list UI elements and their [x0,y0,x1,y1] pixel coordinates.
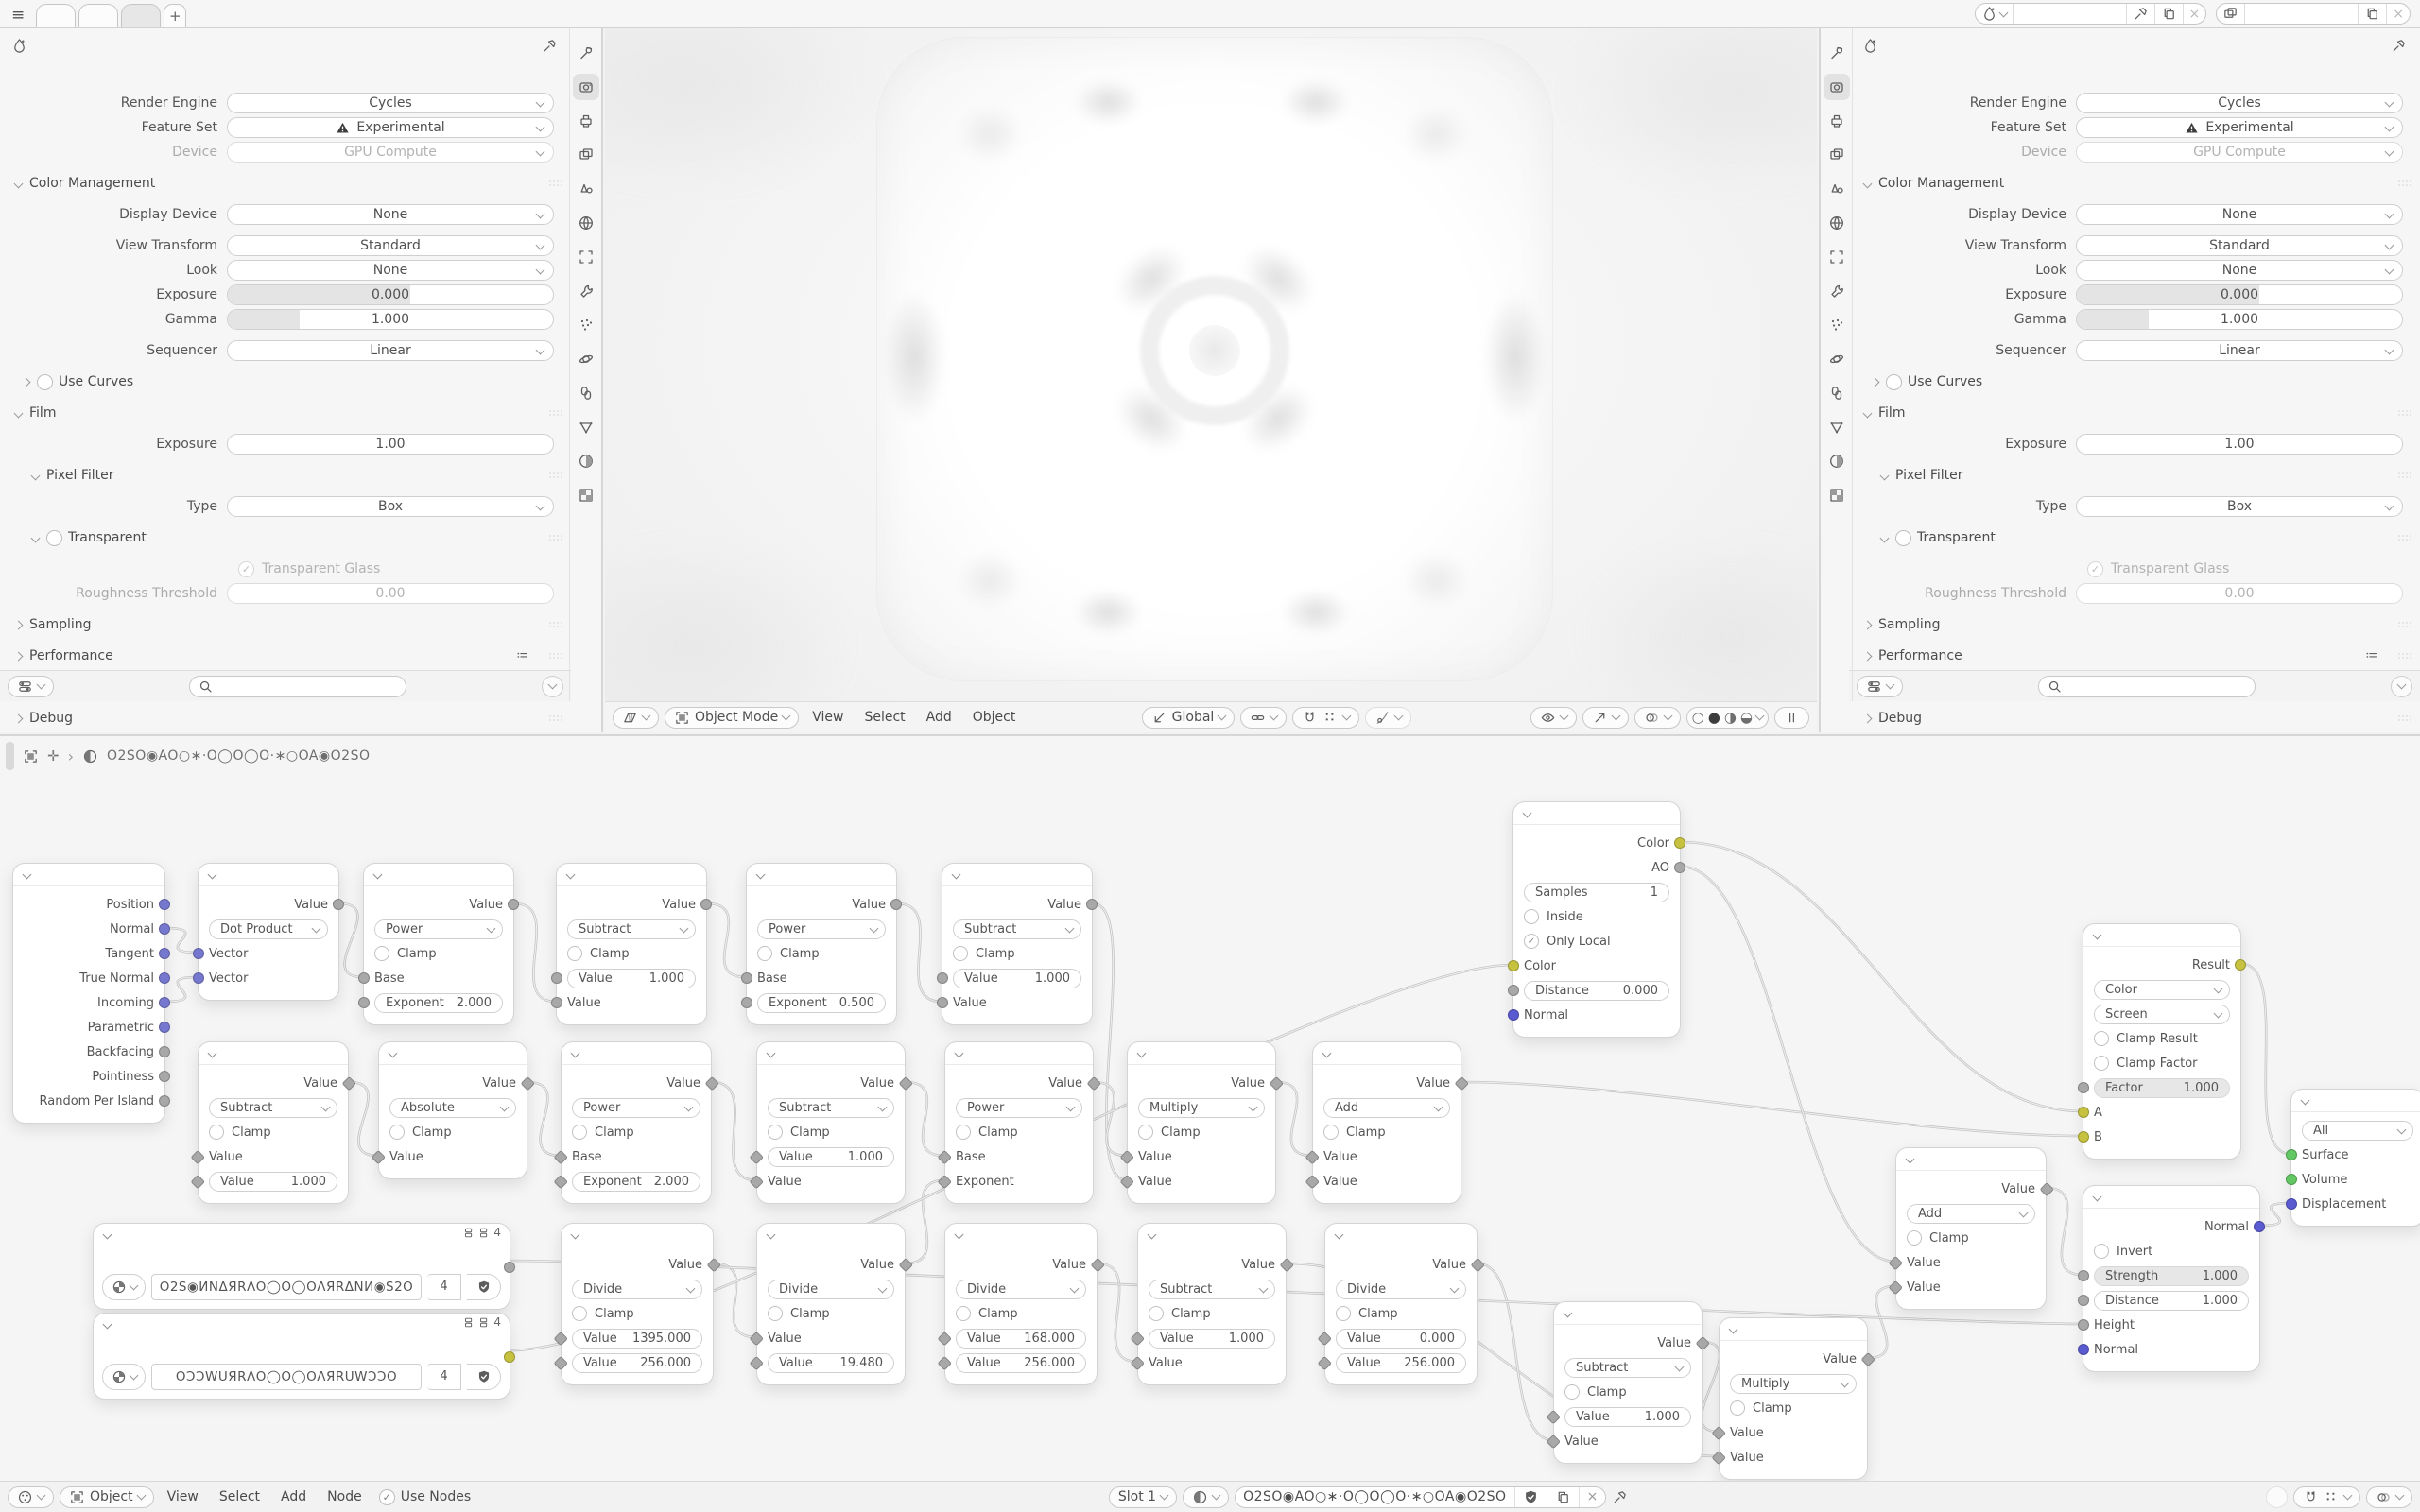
menu-node[interactable]: Node [320,1489,370,1504]
output-socket[interactable] [706,1258,720,1272]
node-row: Value1.000 [199,1169,348,1194]
node-header[interactable] [1896,1148,2046,1171]
output-socket[interactable] [159,923,170,935]
node-bump[interactable]: NormalInvertStrength1.000Distance1.000He… [2083,1185,2260,1372]
node-mathD[interactable]: ValueSubtractClampValue1.000Value [556,863,707,1025]
node-header[interactable] [562,1224,713,1246]
checkbox-clamp[interactable] [572,1125,587,1140]
node-vecmath[interactable]: ValueDot ProductVectorVector [198,863,339,1001]
dropdown-value: Dot Product [220,922,293,936]
input-label: Value [209,1150,243,1164]
node-mathU[interactable]: ValueMultiplyClampValueValue [1719,1317,1868,1480]
input-socket[interactable] [938,1150,952,1164]
input-socket[interactable] [551,997,562,1008]
collapse-chevron-icon[interactable] [566,870,576,880]
input-socket[interactable] [2286,1149,2297,1160]
node-dropdown-divide[interactable]: Divide [1336,1280,1466,1299]
value-field-value[interactable]: Value256.000 [956,1353,1086,1373]
checkbox-clamp[interactable] [956,1306,971,1321]
collapse-chevron-icon[interactable] [952,870,961,880]
node-mathF[interactable]: ValueSubtractClampValue1.000Value [942,863,1093,1025]
collapse-chevron-icon[interactable] [1729,1325,1738,1334]
node-row: Incoming [13,990,164,1015]
node-dropdown-subtract[interactable]: Subtract [953,919,1081,939]
node-header[interactable] [1128,1042,1275,1065]
collapse-chevron-icon[interactable] [389,1049,398,1058]
node-row: Value [1720,1420,1867,1445]
checkbox-clamp[interactable] [567,946,582,961]
node-dropdown-add[interactable]: Add [1907,1204,2035,1224]
checkbox-clamp-factor[interactable] [2094,1056,2109,1071]
input-socket[interactable] [750,1356,764,1370]
collapse-chevron-icon[interactable] [955,1230,964,1240]
field-value: 168.000 [1024,1332,1075,1346]
node-dropdown-power[interactable]: Power [757,919,886,939]
fake-user-shield-button[interactable] [467,1274,501,1300]
checkbox-clamp[interactable] [956,1125,971,1140]
node-dropdown-divide[interactable]: Divide [768,1280,894,1299]
node-row: Add [1896,1201,2046,1226]
checkbox-only-local[interactable]: ✓ [1524,934,1539,949]
output-socket[interactable] [890,899,902,910]
value-field-value[interactable]: Value1.000 [567,969,696,988]
node-dropdown-absolute[interactable]: Absolute [389,1098,516,1118]
collapse-chevron-icon[interactable] [2093,1193,2102,1202]
input-socket[interactable] [1131,1356,1145,1370]
checkbox-label: Clamp [1753,1401,1792,1416]
checkbox-label: Clamp [595,1307,634,1321]
node-header[interactable]: 4 [94,1314,510,1336]
output-socket[interactable] [1086,899,1098,910]
node-header[interactable] [1720,1318,1867,1341]
input-socket[interactable] [1889,1256,1903,1270]
output-socket[interactable] [1674,862,1685,873]
output-socket[interactable] [1269,1076,1283,1091]
node-row: Value256.000 [1325,1350,1477,1375]
node-dropdown-add[interactable]: Add [1323,1098,1450,1118]
node-row: Multiply [1720,1371,1867,1396]
fake-user-shield-button[interactable] [467,1364,501,1390]
input-socket[interactable] [2078,1107,2089,1118]
node-header[interactable] [199,1042,348,1065]
node-mathO[interactable]: ValueDivideClampValue1395.000Value256.00… [561,1223,714,1385]
image-browse-button[interactable] [102,1364,146,1390]
node-img1[interactable]: 4O2S◉ИNΔЯRΛO◯O◯OΛЯRΔNИ◉S2O4 [93,1223,510,1310]
input-socket[interactable] [750,1150,764,1164]
field-value: 2.000 [457,996,492,1010]
node-dropdown-screen[interactable]: Screen [2094,1005,2230,1024]
node-header[interactable] [562,1042,711,1065]
input-socket[interactable] [1712,1451,1726,1465]
input-socket[interactable] [750,1332,764,1346]
collapse-chevron-icon[interactable] [767,1230,776,1240]
node-mathL[interactable]: ValueMultiplyClampValueValue [1127,1041,1276,1204]
checkbox-clamp[interactable] [374,946,389,961]
pin-icon[interactable] [1612,1489,1628,1505]
node-mix[interactable]: ResultColorScreenClamp ResultClamp Facto… [2083,923,2241,1160]
material-name-field[interactable]: O2SO◉AO○∗·O◯O◯O·∗○OA◉O2SO [1236,1487,1514,1507]
checkbox-clamp[interactable] [572,1306,587,1321]
input-socket[interactable] [372,1150,386,1164]
output-socket[interactable] [1674,837,1685,849]
output-socket[interactable] [1470,1258,1484,1272]
value-field-value[interactable]: Value0.000 [1336,1329,1466,1349]
node-header[interactable] [747,864,896,886]
image-name-field[interactable]: O2S◉ИNΔЯRΛO◯O◯OΛЯRΔNИ◉S2O [151,1274,422,1300]
image-browse-button[interactable] [102,1274,146,1300]
overlays-button[interactable] [2366,1486,2412,1508]
node-dropdown-subtract[interactable]: Subtract [768,1098,894,1118]
output-socket[interactable] [159,1046,170,1057]
checkbox-clamp[interactable] [1323,1125,1339,1140]
value-field-value[interactable]: Value168.000 [956,1329,1086,1349]
field-label: Value [1576,1410,1610,1424]
node-row: Base [945,1144,1093,1169]
output-label: AO [1651,861,1669,875]
node-mathH[interactable]: ValueAbsoluteClampValue [378,1041,527,1179]
node-header[interactable] [2083,924,2240,947]
node-mathW[interactable]: ValueAddClampValueValue [1895,1147,2047,1310]
value-field-samples[interactable]: Samples1 [1524,883,1669,902]
input-socket[interactable] [1508,960,1519,971]
output-socket[interactable] [159,972,170,984]
value-field-strength[interactable]: Strength1.000 [2094,1266,2249,1286]
input-socket[interactable] [2078,1131,2089,1143]
input-socket[interactable] [1131,1332,1145,1346]
menu-view[interactable]: View [160,1489,206,1504]
output-label: Value [1047,898,1081,912]
collapse-chevron-icon[interactable] [1564,1309,1573,1318]
input-socket[interactable] [554,1150,568,1164]
value-field-exponent[interactable]: Exponent0.500 [757,993,886,1013]
input-label: Color [1524,959,1556,973]
output-socket[interactable] [704,1076,718,1091]
field-label: Distance [1535,984,1589,998]
checkbox-clamp[interactable] [1730,1400,1745,1416]
collapse-chevron-icon[interactable] [2093,931,2102,940]
node-header[interactable] [945,1224,1097,1246]
use-nodes-checkbox[interactable]: ✓Use Nodes [379,1489,471,1505]
collapse-chevron-icon[interactable] [373,870,383,880]
node-body: ValueSubtractClampValue1.000Value [1554,1325,1702,1463]
node-dropdown-subtract[interactable]: Subtract [1564,1358,1691,1378]
node-dropdown-power[interactable]: Power [374,919,503,939]
node-dropdown-all[interactable]: All [2302,1121,2413,1141]
ghost-button[interactable] [2266,1486,2288,1508]
checkbox-clamp[interactable] [1564,1384,1580,1400]
image-datablock-row: OƆƆWUЯRΛO◯O◯OΛЯRUWƆƆO4 [102,1363,501,1390]
node-header[interactable] [199,864,338,886]
value-field-exponent[interactable]: Exponent2.000 [572,1172,700,1192]
output-socket[interactable] [1454,1076,1468,1091]
value-field-value[interactable]: Value1.000 [209,1172,337,1192]
checkbox-clamp[interactable] [768,1125,783,1140]
input-socket[interactable] [938,1356,952,1370]
output-socket[interactable] [700,899,712,910]
menu-add[interactable]: Add [273,1489,314,1504]
node-row: All [2291,1118,2420,1143]
node-header[interactable] [757,1224,905,1246]
output-label: Value [1048,1076,1082,1091]
node-header[interactable] [364,864,513,886]
field-value: 0.500 [839,996,874,1010]
output-socket[interactable] [159,899,170,910]
collapse-chevron-icon[interactable] [103,1230,112,1240]
collapse-chevron-icon[interactable] [1523,809,1532,818]
field-value: 1395.000 [632,1332,691,1346]
output-socket[interactable] [341,1076,355,1091]
output-socket[interactable] [898,1258,912,1272]
value-field-value[interactable]: Value1.000 [953,969,1081,988]
node-geometry[interactable]: PositionNormalTangentTrue NormalIncoming… [12,863,165,1124]
collapse-chevron-icon[interactable] [756,870,766,880]
value-field-value[interactable]: Value1.000 [1564,1407,1691,1427]
output-socket[interactable] [1279,1258,1293,1272]
input-socket[interactable] [358,972,370,984]
node-dropdown-subtract[interactable]: Subtract [209,1098,337,1118]
node-mathS[interactable]: ValueDivideClampValue0.000Value256.000 [1324,1223,1478,1385]
material-browse-button[interactable] [1183,1486,1229,1508]
input-socket[interactable] [741,997,752,1008]
collapse-chevron-icon[interactable] [103,1320,112,1330]
node-header[interactable] [2083,1186,2259,1209]
output-socket[interactable] [159,1022,170,1033]
node-dropdown-subtract[interactable]: Subtract [1149,1280,1275,1299]
field-value: 0.000 [2221,287,2258,302]
input-socket[interactable] [937,972,948,984]
input-socket[interactable] [551,972,562,984]
node-dropdown-divide[interactable]: Divide [956,1280,1086,1299]
node-mathJ[interactable]: ValueSubtractClampValue1.000Value [756,1041,906,1204]
input-socket[interactable] [193,948,204,959]
input-socket[interactable] [2286,1174,2297,1185]
output-socket[interactable] [1090,1258,1104,1272]
checkbox-clamp[interactable] [953,946,968,961]
collapse-chevron-icon[interactable] [1322,1049,1332,1058]
output-socket[interactable] [2254,1221,2265,1232]
output-socket[interactable] [159,1071,170,1082]
snapping-button[interactable] [2293,1486,2360,1508]
collapse-chevron-icon[interactable] [208,870,217,880]
input-socket[interactable] [554,1332,568,1346]
input-socket[interactable] [554,1356,568,1370]
node-dropdown-dot-product[interactable]: Dot Product [209,919,328,939]
input-socket[interactable] [1120,1175,1134,1189]
output-socket[interactable] [333,899,344,910]
node-mathR[interactable]: ValueSubtractClampValue1.000Value [1137,1223,1287,1385]
node-row: Random Per Island [13,1089,164,1113]
node-mathP[interactable]: ValueDivideClampValueValue19.480 [756,1223,906,1385]
input-socket[interactable] [1318,1356,1332,1370]
node-header[interactable] [1513,802,1680,825]
input-socket[interactable] [2078,1295,2089,1306]
input-socket[interactable] [554,1175,568,1189]
fake-user-shield-icon[interactable] [1514,1487,1547,1507]
collapse-chevron-icon[interactable] [1335,1230,1344,1240]
input-socket[interactable] [2078,1270,2089,1281]
node-dropdown-multiply[interactable]: Multiply [1730,1374,1857,1394]
value-field-value[interactable]: Value1.000 [768,1147,894,1167]
collapse-chevron-icon[interactable] [767,1049,776,1058]
field-value: 256.000 [1024,1356,1075,1370]
output-socket[interactable] [2235,959,2246,971]
node-dropdown-power[interactable]: Power [956,1098,1082,1118]
dropdown-chevron-icon [2214,984,2223,993]
output-socket[interactable] [520,1076,534,1091]
node-mathG[interactable]: ValueSubtractClampValueValue1.000 [198,1041,349,1204]
input-socket[interactable] [750,1175,764,1189]
collapse-chevron-icon[interactable] [1137,1049,1147,1058]
node-img2[interactable]: 4OƆƆWUЯRΛO◯O◯OΛЯRUWƆƆO4 [93,1313,510,1400]
input-socket[interactable] [1712,1426,1726,1440]
output-socket[interactable] [898,1076,912,1091]
node-header[interactable] [557,864,706,886]
node-dropdown-divide[interactable]: Divide [572,1280,702,1299]
node-header[interactable] [945,1042,1093,1065]
collapse-chevron-icon[interactable] [208,1049,217,1058]
input-socket[interactable] [1508,985,1519,996]
node-row: Clamp [364,941,513,966]
node-mathQ[interactable]: ValueDivideClampValue168.000Value256.000 [944,1223,1098,1385]
input-socket[interactable] [938,1175,952,1189]
input-socket[interactable] [1120,1150,1134,1164]
value-field-value[interactable]: Value19.480 [768,1353,894,1373]
node-mathM[interactable]: ValueAddClampValueValue [1312,1041,1461,1204]
input-socket[interactable] [1547,1410,1561,1424]
node-header[interactable] [1313,1042,1461,1065]
node-ao[interactable]: ColorAOSamples1Inside✓Only LocalColorDis… [1512,801,1681,1038]
unlink-icon[interactable]: × [1579,1487,1606,1507]
checkbox-clamp[interactable] [1336,1306,1351,1321]
input-socket[interactable] [193,972,204,984]
output-socket[interactable] [2039,1182,2053,1196]
checkbox-clamp[interactable] [1907,1230,1922,1246]
collapse-chevron-icon[interactable] [23,870,32,880]
collapse-chevron-icon[interactable] [571,1049,580,1058]
input-socket[interactable] [358,997,370,1008]
checkbox-clamp-result[interactable] [2094,1031,2109,1046]
output-socket[interactable] [159,948,170,959]
value-field-value[interactable]: Value1.000 [1149,1329,1275,1349]
input-socket[interactable] [2078,1082,2089,1093]
output-socket[interactable] [159,997,170,1008]
collapse-chevron-icon[interactable] [2301,1096,2310,1106]
toolbar-tab[interactable] [6,742,14,770]
node-mathK[interactable]: ValuePowerClampBaseExponent [944,1041,1094,1204]
node-header[interactable]: 4 [94,1224,510,1246]
input-socket[interactable] [2078,1344,2089,1355]
node-row: Clamp [562,1301,713,1326]
input-socket[interactable] [191,1175,205,1189]
input-socket[interactable] [1305,1150,1320,1164]
value-field-value[interactable]: Value1395.000 [572,1329,702,1349]
collapse-chevron-icon[interactable] [1906,1155,1915,1164]
input-socket[interactable] [2286,1198,2297,1210]
collapse-chevron-icon[interactable] [1148,1230,1157,1240]
output-socket[interactable] [504,1351,515,1363]
node-dropdown-power[interactable]: Power [572,1098,700,1118]
output-socket[interactable] [1860,1352,1875,1366]
node-header[interactable] [1554,1302,1702,1325]
checkbox-label: Clamp [780,947,820,961]
slot-selector[interactable]: Slot 1 [1109,1486,1177,1508]
input-socket[interactable] [1318,1332,1332,1346]
menu-select[interactable]: Select [212,1489,268,1504]
output-socket[interactable] [508,899,519,910]
node-row: Value [199,1144,348,1169]
input-socket[interactable] [938,1332,952,1346]
node-header[interactable] [942,864,1092,886]
copy-icon[interactable] [1547,1487,1579,1507]
output-socket[interactable] [159,1095,170,1107]
node-header[interactable] [13,864,164,886]
node-header[interactable] [1325,1224,1477,1246]
editor-type-button[interactable] [8,1486,54,1508]
checkbox-invert[interactable] [2094,1244,2109,1259]
value-field-factor[interactable]: Factor1.000 [2094,1078,2230,1098]
field-value: 256.000 [640,1356,691,1370]
checkbox-clamp[interactable] [1138,1125,1153,1140]
output-socket[interactable] [1695,1336,1709,1350]
node-mathT[interactable]: ValueSubtractClampValue1.000Value [1553,1301,1703,1464]
field-value: 1.000 [2221,312,2258,327]
shader-type-selector[interactable]: Object [60,1486,154,1508]
node-output[interactable]: AllSurfaceVolumeDisplacement [2290,1089,2420,1227]
input-socket[interactable] [741,972,752,984]
checkbox-clamp[interactable] [389,1125,405,1140]
input-socket[interactable] [1547,1435,1561,1449]
checkbox-clamp[interactable] [1149,1306,1164,1321]
checkbox-clamp[interactable] [209,1125,224,1140]
node-header[interactable] [757,1042,905,1065]
node-row: Normal [2083,1337,2259,1362]
collapse-chevron-icon[interactable] [955,1049,964,1058]
output-socket[interactable] [1086,1076,1100,1091]
node-dropdown-color[interactable]: Color [2094,980,2230,1000]
input-socket[interactable] [1305,1175,1320,1189]
checkbox-clamp[interactable] [757,946,772,961]
output-socket[interactable] [504,1262,515,1273]
input-socket[interactable] [937,997,948,1008]
input-socket[interactable] [1889,1280,1903,1295]
input-socket[interactable] [2078,1319,2089,1331]
node-mathI[interactable]: ValuePowerClampBaseExponent2.000 [561,1041,712,1204]
node-dropdown-subtract[interactable]: Subtract [567,919,696,939]
shader-editor[interactable]: PositionNormalTangentTrue NormalIncoming… [0,734,2420,1512]
dropdown-value: Multiply [1149,1101,1198,1115]
value-field-distance[interactable]: Distance0.000 [1524,981,1669,1001]
input-socket[interactable] [1508,1009,1519,1021]
node-dropdown-multiply[interactable]: Multiply [1138,1098,1265,1118]
node-header[interactable] [379,1042,527,1065]
node-mathE[interactable]: ValuePowerClampBaseExponent0.500 [746,863,897,1025]
image-name-field[interactable]: OƆƆWUЯRΛO◯O◯OΛЯRUWƆƆO [151,1364,422,1390]
value-field-distance[interactable]: Distance1.000 [2094,1291,2249,1311]
checkbox-clamp[interactable] [768,1306,783,1321]
node-mathC[interactable]: ValuePowerClampBaseExponent2.000 [363,863,514,1025]
node-row: Height [2083,1313,2259,1337]
input-socket[interactable] [191,1150,205,1164]
value-field-value[interactable]: Value256.000 [1336,1353,1466,1373]
node-header[interactable] [2291,1090,2420,1112]
node-header[interactable] [1138,1224,1286,1246]
value-field-exponent[interactable]: Exponent2.000 [374,993,503,1013]
node-row: Value [757,1071,905,1095]
field-value: Cycles [2218,95,2261,111]
collapse-chevron-icon[interactable] [571,1230,580,1240]
value-field-value[interactable]: Value256.000 [572,1353,702,1373]
checkbox-inside[interactable] [1524,909,1539,924]
